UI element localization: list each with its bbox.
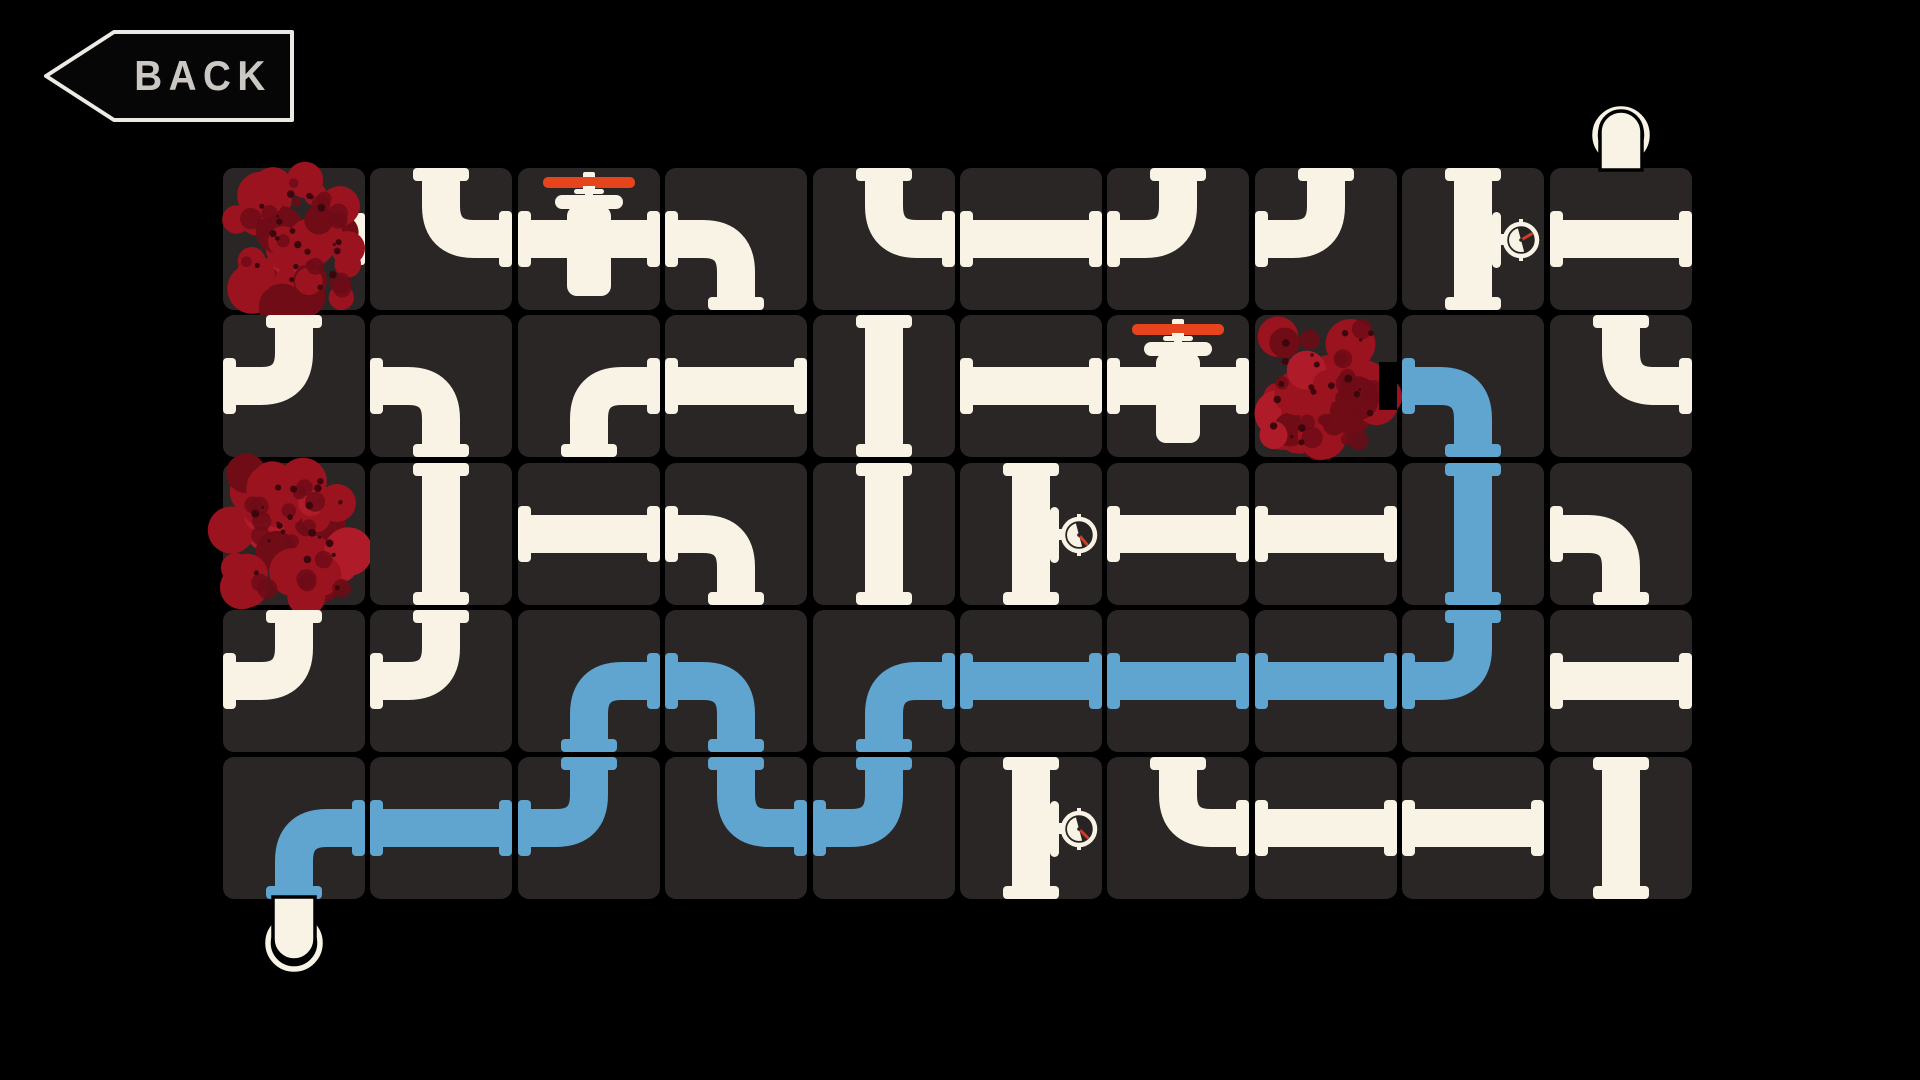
- tile-r1c1-blood-covered-tile[interactable]: [223, 168, 365, 310]
- tile-r2c9-pipe-elbow-water[interactable]: [1402, 315, 1544, 457]
- tile-r4c8-pipe-straight-water[interactable]: [1255, 610, 1397, 752]
- tile-r5c1-pipe-elbow-water[interactable]: [223, 757, 365, 899]
- tile-r1c4-pipe-elbow[interactable]: [665, 168, 807, 310]
- tile-r1c6-pipe-straight[interactable]: [960, 168, 1102, 310]
- tile-r1c9-gauge-pipe[interactable]: [1402, 168, 1544, 310]
- tile-r1c2-pipe-elbow[interactable]: [370, 168, 512, 310]
- tile-r3c2-pipe-straight[interactable]: [370, 463, 512, 605]
- tile-r2c3-pipe-elbow[interactable]: [518, 315, 660, 457]
- tile-r4c4-pipe-elbow-water[interactable]: [665, 610, 807, 752]
- tile-r3c4-pipe-elbow[interactable]: [665, 463, 807, 605]
- tile-r2c6-pipe-straight[interactable]: [960, 315, 1102, 457]
- tile-r2c4-pipe-straight[interactable]: [665, 315, 807, 457]
- tile-r2c2-pipe-elbow[interactable]: [370, 315, 512, 457]
- tile-r5c3-pipe-elbow-water[interactable]: [518, 757, 660, 899]
- tile-r3c8-pipe-straight[interactable]: [1255, 463, 1397, 605]
- tile-r4c9-pipe-elbow-water[interactable]: [1402, 610, 1544, 752]
- tile-r1c8-pipe-elbow[interactable]: [1255, 168, 1397, 310]
- tile-r2c10-pipe-elbow[interactable]: [1550, 315, 1692, 457]
- pipe-board: [223, 168, 1692, 899]
- tile-r3c6-gauge-pipe[interactable]: [960, 463, 1102, 605]
- tile-r4c6-pipe-straight-water[interactable]: [960, 610, 1102, 752]
- tile-r3c7-pipe-straight[interactable]: [1107, 463, 1249, 605]
- water-inlet: [1550, 100, 1692, 168]
- back-button-label: BACK: [121, 26, 285, 126]
- tile-r1c5-pipe-elbow[interactable]: [813, 168, 955, 310]
- tile-r3c3-pipe-straight[interactable]: [518, 463, 660, 605]
- tile-r5c5-pipe-elbow-water[interactable]: [813, 757, 955, 899]
- tile-r1c7-pipe-elbow[interactable]: [1107, 168, 1249, 310]
- tile-r5c10-pipe-straight[interactable]: [1550, 757, 1692, 899]
- tile-r5c6-gauge-pipe[interactable]: [960, 757, 1102, 899]
- tile-r4c3-pipe-elbow-water[interactable]: [518, 610, 660, 752]
- water-outlet: [223, 899, 365, 979]
- tile-r2c8-blood-covered-tile[interactable]: [1255, 315, 1397, 457]
- back-button[interactable]: BACK: [38, 26, 302, 126]
- tile-r3c10-pipe-elbow[interactable]: [1550, 463, 1692, 605]
- game-screen: BACK: [0, 0, 1920, 1080]
- tile-r5c4-pipe-elbow-water[interactable]: [665, 757, 807, 899]
- tile-r4c10-pipe-straight[interactable]: [1550, 610, 1692, 752]
- tile-r2c1-pipe-elbow[interactable]: [223, 315, 365, 457]
- tile-r5c9-pipe-straight[interactable]: [1402, 757, 1544, 899]
- tile-r3c9-pipe-straight-water[interactable]: [1402, 463, 1544, 605]
- tile-r2c7-valve-pipe[interactable]: [1107, 315, 1249, 457]
- tile-r3c1-blood-covered-tile[interactable]: [223, 463, 365, 605]
- tile-r1c3-valve-pipe[interactable]: [518, 168, 660, 310]
- tile-r4c5-pipe-elbow-water[interactable]: [813, 610, 955, 752]
- tile-r2c5-pipe-straight[interactable]: [813, 315, 955, 457]
- tile-r5c8-pipe-straight[interactable]: [1255, 757, 1397, 899]
- tile-r3c5-pipe-straight[interactable]: [813, 463, 955, 605]
- tile-r4c7-pipe-straight-water[interactable]: [1107, 610, 1249, 752]
- tile-r1c10-pipe-straight[interactable]: [1550, 168, 1692, 310]
- tile-r4c2-pipe-elbow[interactable]: [370, 610, 512, 752]
- tile-r5c2-pipe-straight-water[interactable]: [370, 757, 512, 899]
- tile-r4c1-pipe-elbow[interactable]: [223, 610, 365, 752]
- tile-r5c7-pipe-elbow[interactable]: [1107, 757, 1249, 899]
